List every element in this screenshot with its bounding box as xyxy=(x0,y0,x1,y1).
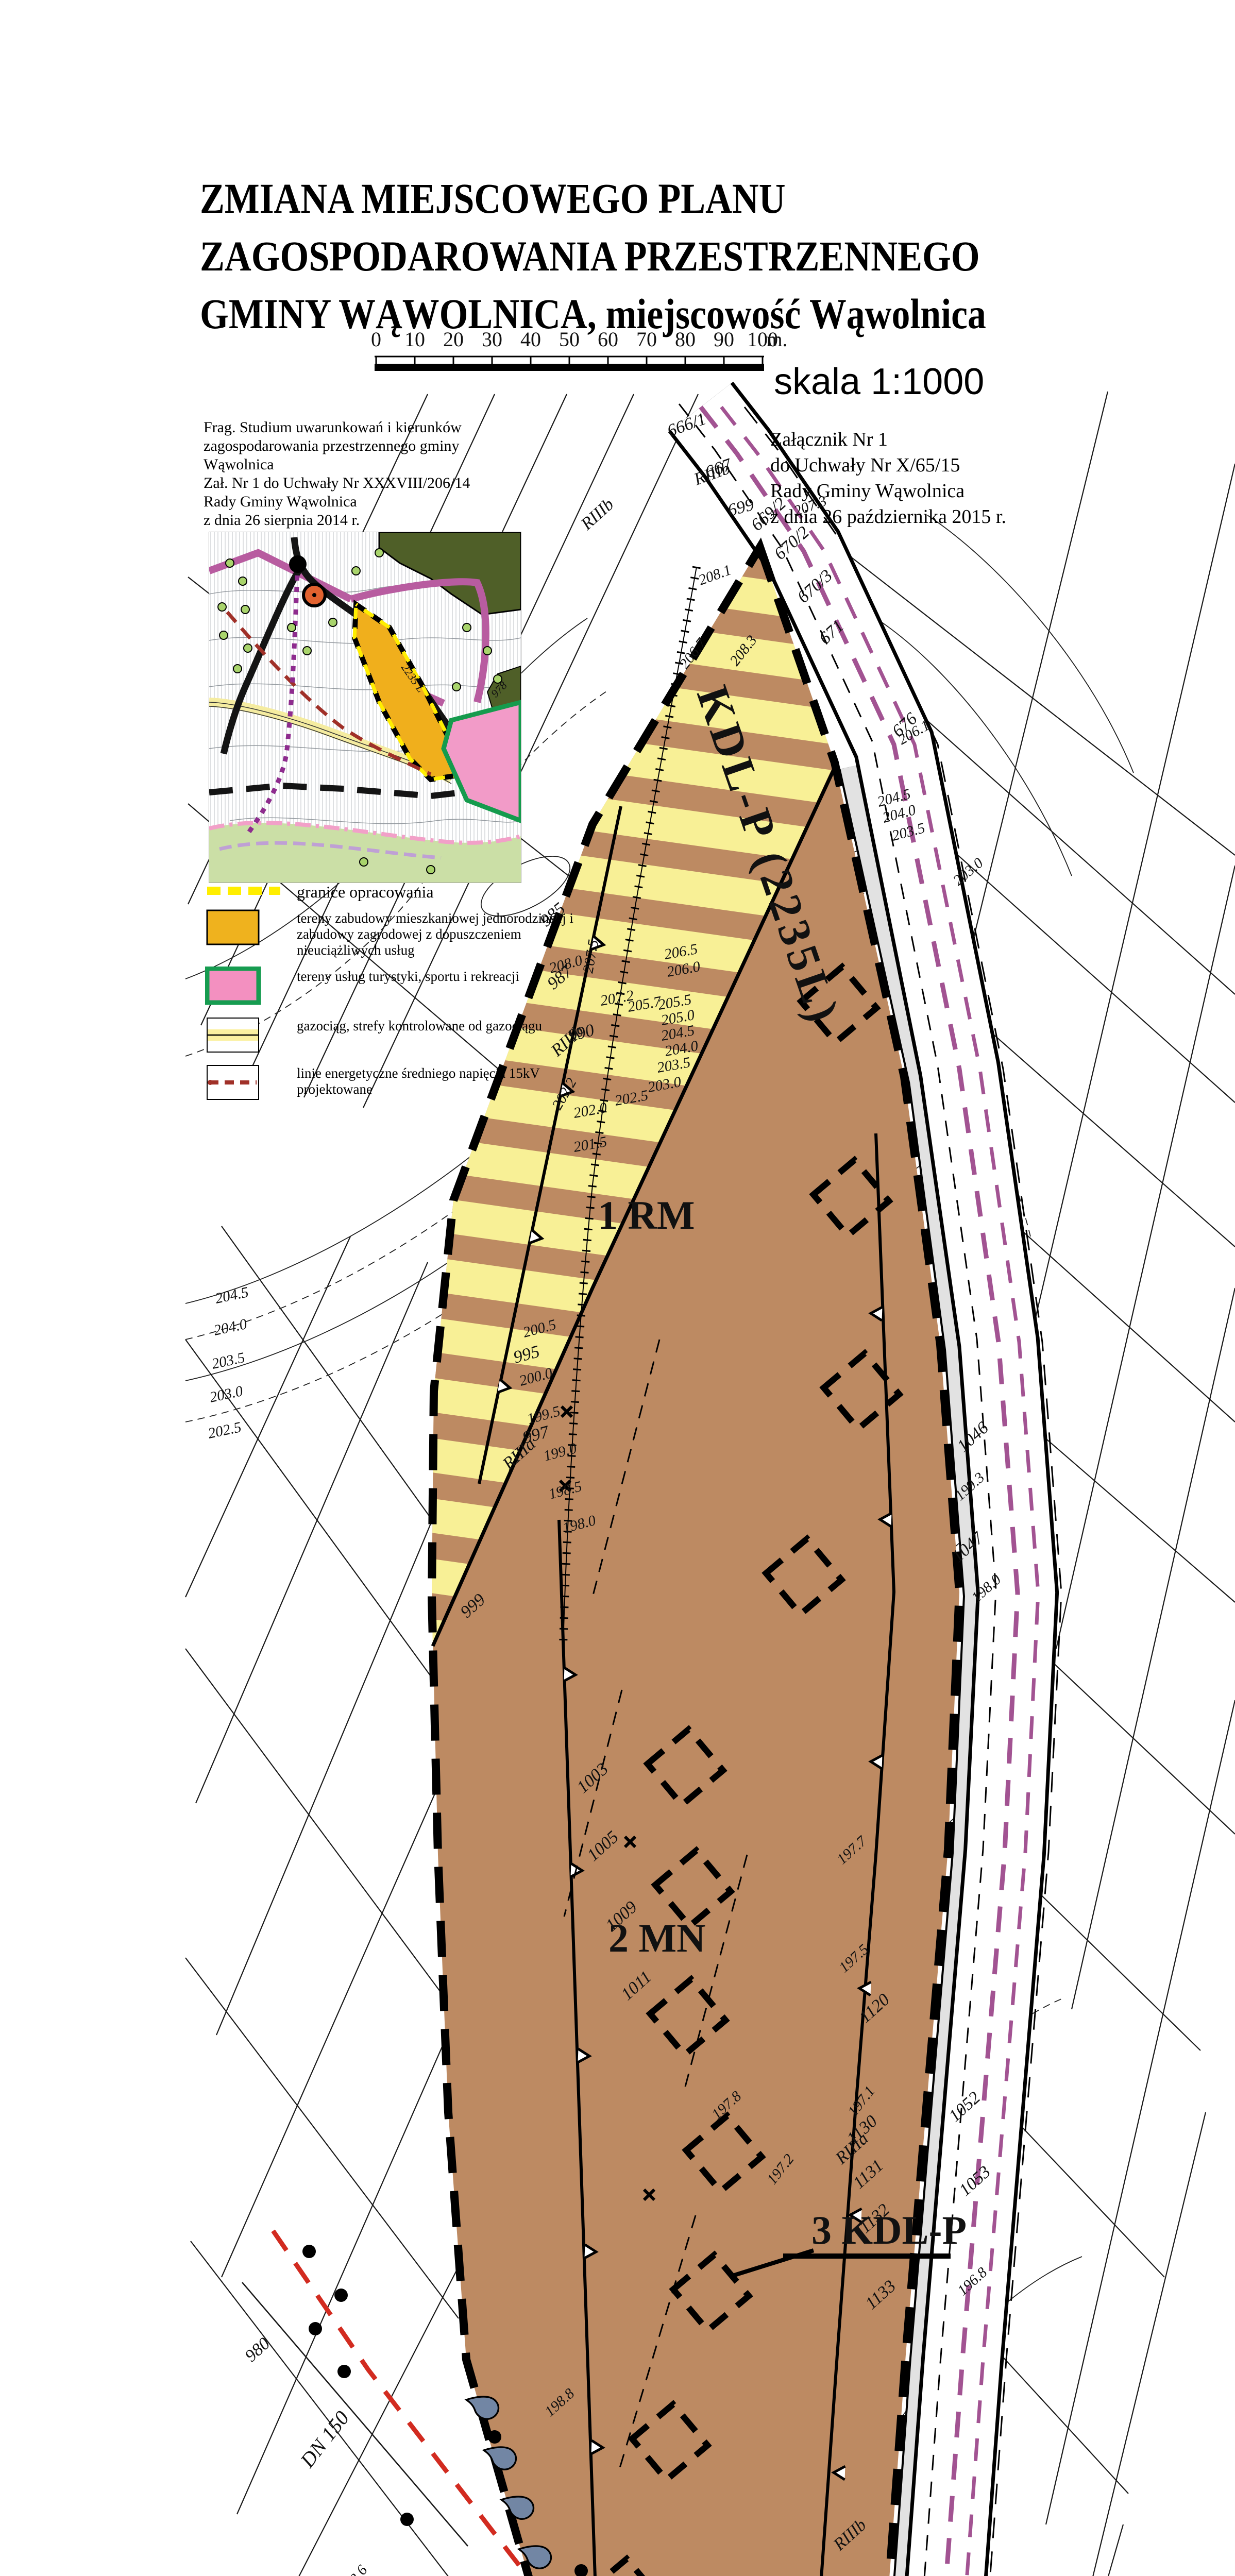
granice-opracowania-symbol xyxy=(205,882,282,900)
linie-energetyczne-symbol xyxy=(205,1063,282,1103)
inset-legend-item-gazociag: gazociąg, strefy kontrolowane od gazocią… xyxy=(205,1016,597,1055)
gazociag-symbol xyxy=(205,1016,282,1055)
svg-text:30: 30 xyxy=(482,328,502,351)
svg-text:203.0: 203.0 xyxy=(208,1383,245,1406)
svg-text:198.6: 198.6 xyxy=(337,2562,371,2576)
svg-text:RIIIb: RIIIb xyxy=(577,495,618,534)
svg-text:204.5: 204.5 xyxy=(214,1284,250,1307)
svg-text:90: 90 xyxy=(714,328,734,351)
inset-legend-item-uslugi: tereny usług turystyki, sportu i rekreac… xyxy=(205,967,597,1008)
svg-text:3 KDL-P: 3 KDL-P xyxy=(811,2208,967,2252)
svg-text:202.5: 202.5 xyxy=(207,1419,243,1442)
svg-text:208.1: 208.1 xyxy=(696,562,733,588)
svg-text:10: 10 xyxy=(404,328,425,351)
svg-text:2 MN: 2 MN xyxy=(608,1916,705,1960)
scale-bar: 0102030405060708090100m. xyxy=(0,319,1235,392)
svg-text:203.5: 203.5 xyxy=(210,1349,246,1372)
inset-legend: granice opracowania tereny zabudowy mies… xyxy=(205,882,597,1111)
svg-text:20: 20 xyxy=(443,328,464,351)
attachment-note: Załącznik Nr 1 do Uchwały Nr X/65/15 Rad… xyxy=(770,427,1006,530)
svg-text:60: 60 xyxy=(598,328,618,351)
plan-sheet: 666/1667699669/2670/2670/3671676RIIIbRII… xyxy=(0,0,1235,2576)
title-line2: ZAGOSPODAROWANIA PRZESTRZENNEGO xyxy=(200,228,986,285)
title-line1: ZMIANA MIEJSCOWEGO PLANU xyxy=(200,170,986,228)
studium-inset-map: 2235 L978 xyxy=(209,532,521,883)
inset-legend-item-granice: granice opracowania xyxy=(205,882,597,900)
svg-text:40: 40 xyxy=(520,328,541,351)
svg-text:DN 150: DN 150 xyxy=(295,2406,353,2472)
tereny-zabudowy-symbol xyxy=(205,908,282,950)
page-title: ZMIANA MIEJSCOWEGO PLANU ZAGOSPODAROWANI… xyxy=(200,170,986,343)
svg-text:m.: m. xyxy=(766,328,787,351)
svg-text:204.0: 204.0 xyxy=(212,1316,249,1339)
svg-text:70: 70 xyxy=(636,328,657,351)
svg-text:0: 0 xyxy=(371,328,381,351)
studium-note: Frag. Studium uwarunkowań i kierunków za… xyxy=(204,418,470,530)
svg-text:80: 80 xyxy=(675,328,696,351)
tereny-uslug-symbol xyxy=(205,967,282,1008)
svg-text:50: 50 xyxy=(559,328,580,351)
svg-text:1 RM: 1 RM xyxy=(598,1193,695,1238)
inset-legend-item-zabudowa: tereny zabudowy mieszkaniowej jednorodzi… xyxy=(205,908,597,958)
inset-legend-item-energetyka: linie energetyczne średniego napięcia 15… xyxy=(205,1063,597,1103)
scale-text: skala 1:1000 xyxy=(774,361,984,403)
svg-text:980: 980 xyxy=(242,2334,274,2366)
